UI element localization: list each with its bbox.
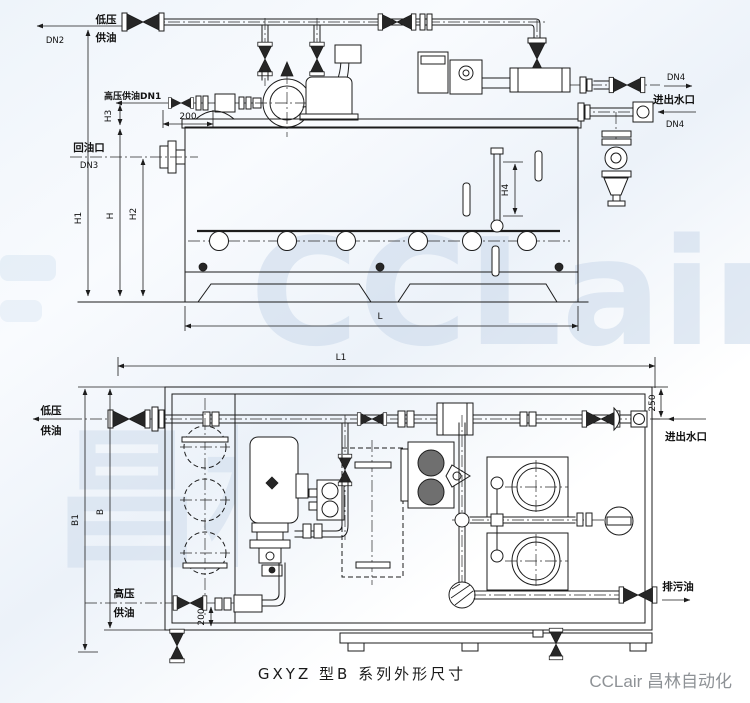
front-dn4-out-label: DN4 [667,73,685,83]
return-port-dn-label: DN3 [80,161,98,171]
plan-lp-label-2: 供油 [40,424,62,437]
front-lp-label-2: 供油 [95,31,117,44]
dim-200-plan-label: 200 [197,608,207,625]
front-dn2-label: DN2 [46,36,64,46]
engineering-drawing: CCLair 昌林自动化 低压 供油 DN2 [0,0,750,703]
front-lp-label-1: 低压 [95,13,117,26]
plan-hp-label-1: 高压 [114,587,135,600]
dim-h4-label: H4 [501,183,511,196]
watermark-fragment [0,255,56,281]
dim-h2-label: H2 [129,208,139,221]
dim-l-label: L [377,312,382,322]
watermark-brand: CCLair [250,207,750,379]
plan-lp-label-1: 低压 [40,404,62,417]
elbow-ball-icon [449,582,475,608]
drawing-page: CCLair 昌林自动化 低压 供油 DN2 [0,0,750,703]
dim-200-label: 200 [179,112,196,122]
gauge-icon [459,66,473,80]
dim-b1-label: B1 [71,514,81,526]
dim-l1-label: L1 [336,353,347,363]
front-hp-label: 高压供油DN1 [104,90,161,102]
dim-h3-label: H3 [104,110,114,123]
dim-b-label: B [96,509,106,515]
front-dn4-in-label: DN4 [666,120,684,130]
plan-drain-label: 排污油 [662,580,694,593]
drawing-caption: GXYZ 型B 系列外形尺寸 [258,665,466,683]
brand-credit: CCLair 昌林自动化 [589,672,732,691]
watermark-fragment [0,300,42,322]
front-water-port-label: 进出水口 [653,93,695,106]
return-port-label: 回油口 [73,141,105,154]
heat-exchanger-icon [510,68,570,92]
dim-h-label: H [106,213,116,220]
drain-valve-icon [605,147,627,169]
dim-250-label: 250 [648,394,658,411]
plan-water-port-label: 进出水口 [665,430,707,443]
dim-h1-label: H1 [74,212,84,225]
plan-hp-label-2: 供油 [113,606,135,619]
